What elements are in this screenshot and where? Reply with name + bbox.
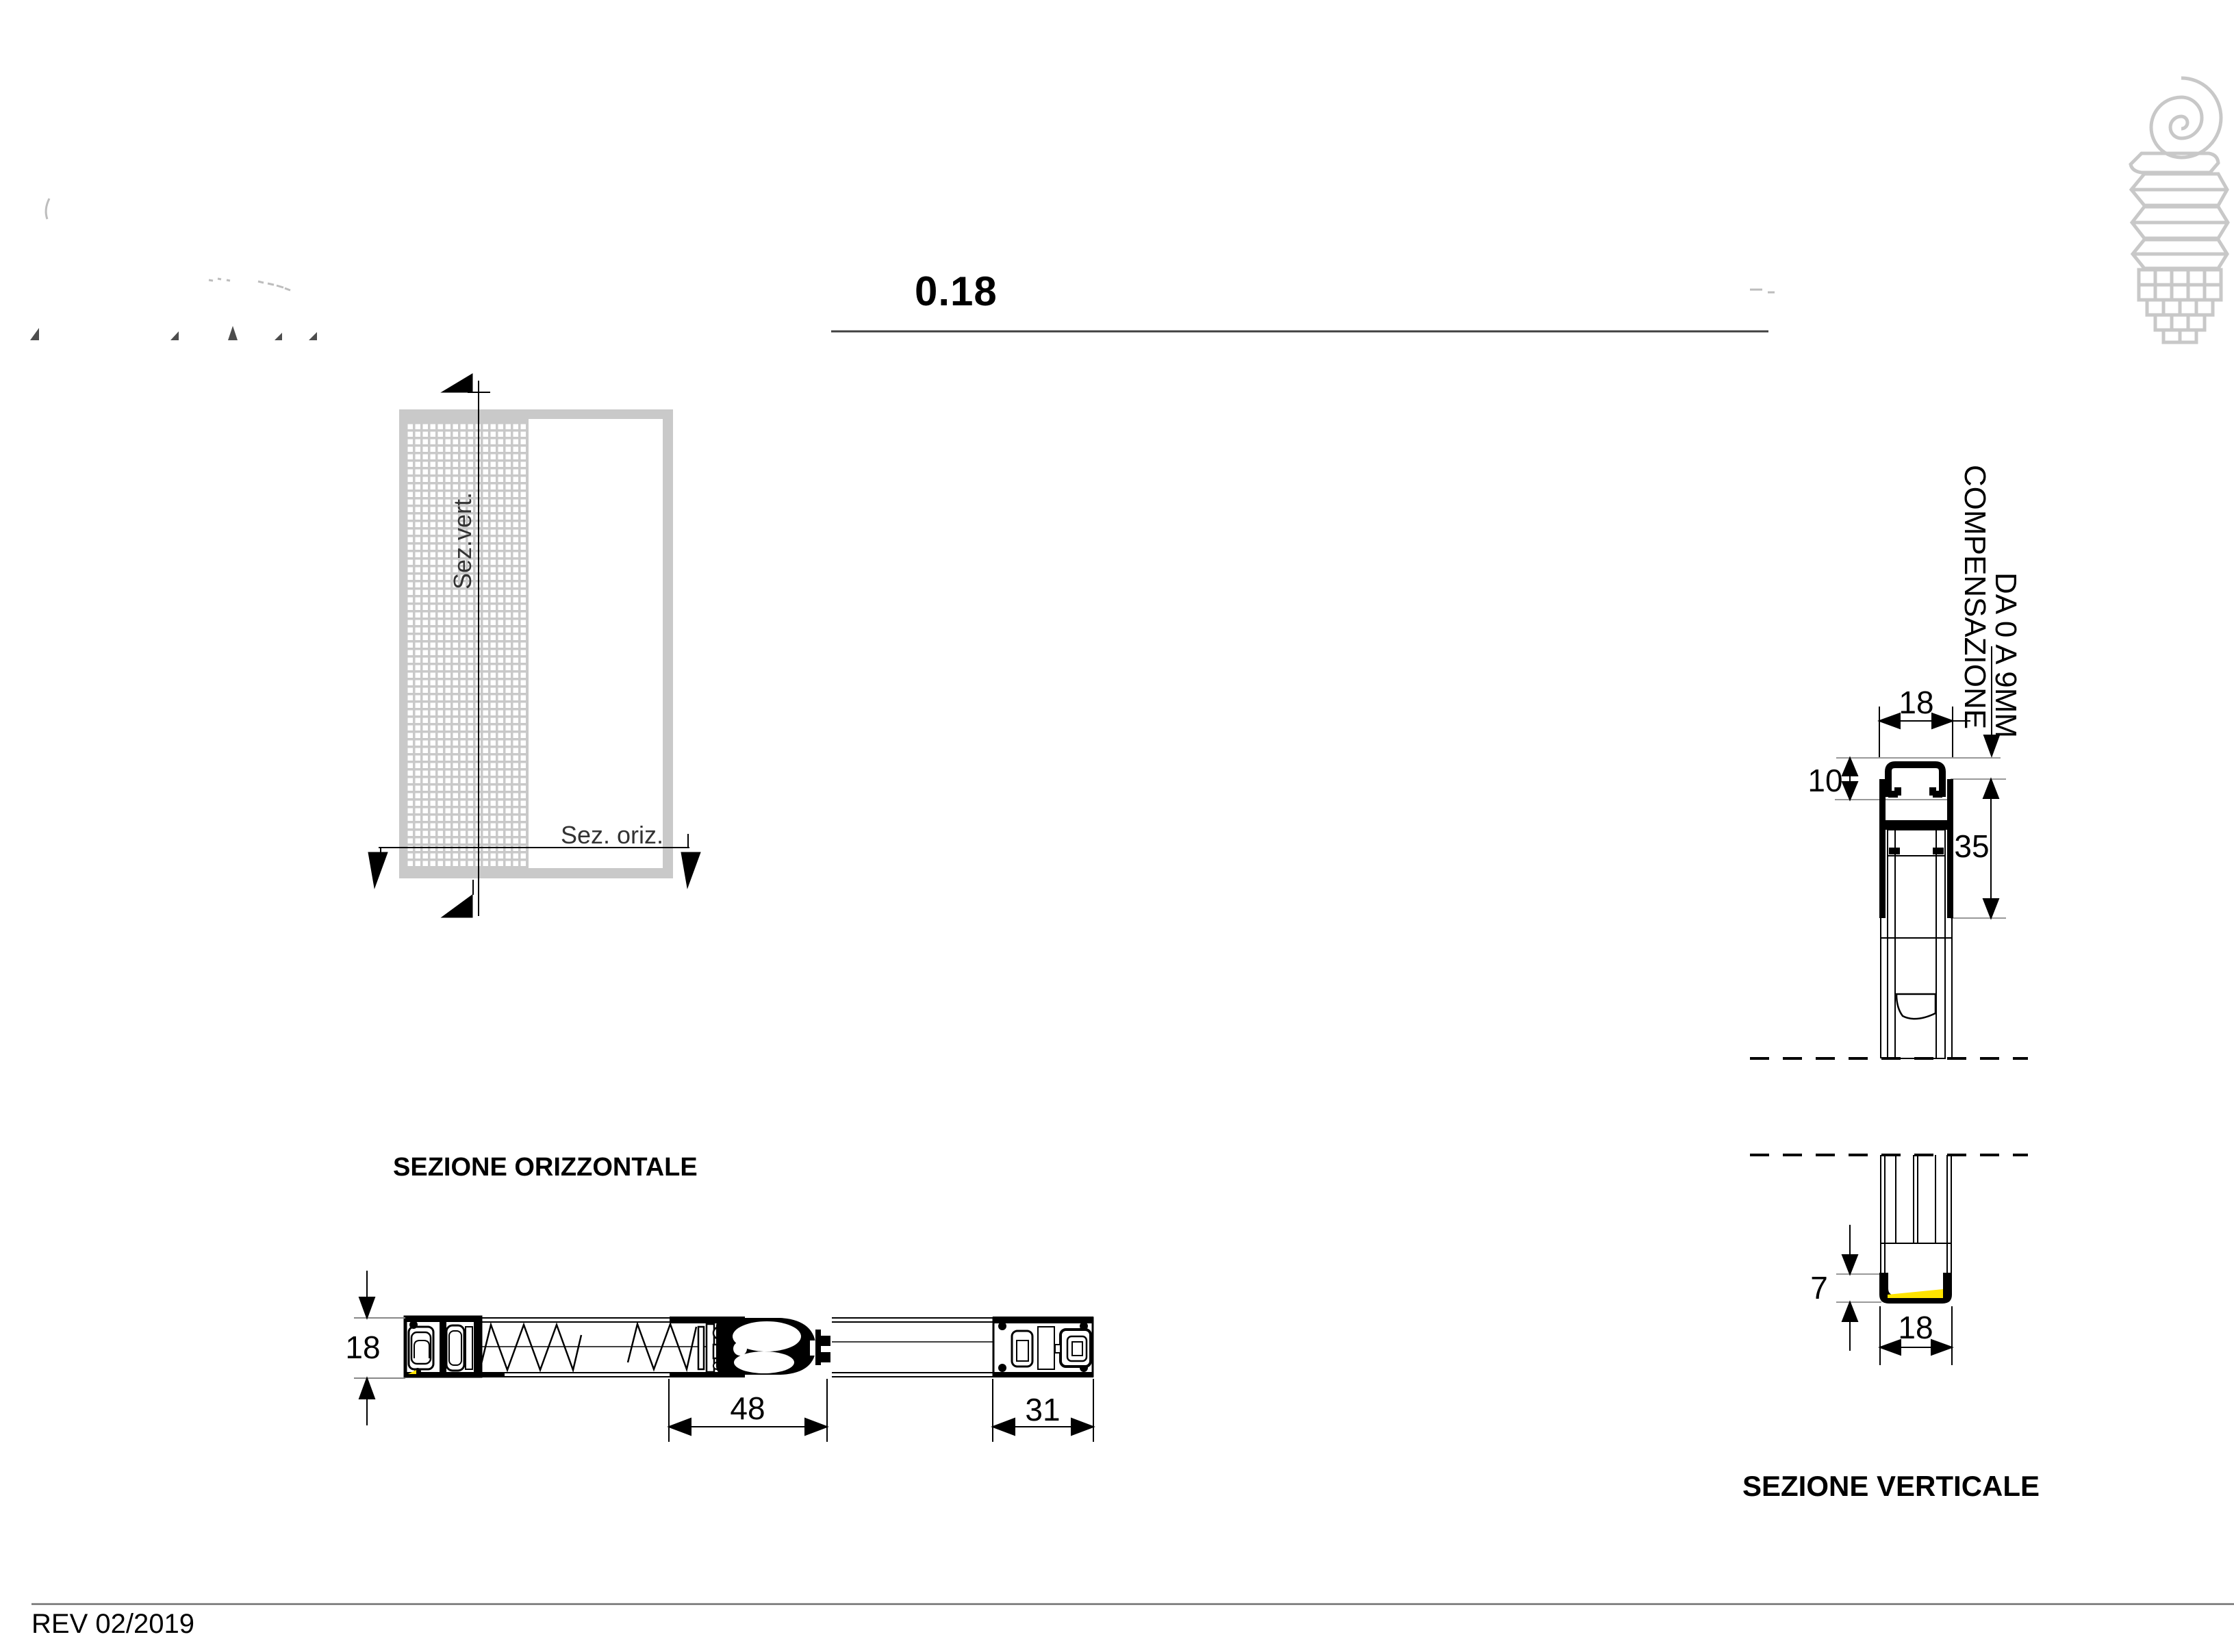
spiral-ribbon-grid-logo-icon bbox=[2131, 78, 2228, 342]
dim-label-bottom-height: 7 bbox=[1810, 1272, 1828, 1304]
dim-label-cassette-width: 48 bbox=[730, 1393, 765, 1424]
dim-label-frame-depth: 18 bbox=[345, 1332, 380, 1363]
dim-label-overlap: 35 bbox=[1954, 830, 1989, 862]
compensation-note-line2: DA 0 A 9MM bbox=[1990, 572, 2020, 738]
technical-drawing-canvas bbox=[0, 0, 2234, 1652]
drawing-sheet: { "sheet": { "title": "0.18", "revision"… bbox=[0, 0, 2234, 1652]
cassette-profile bbox=[670, 1317, 830, 1377]
page-title: 0.18 bbox=[915, 271, 998, 312]
plan-open-panel bbox=[529, 419, 663, 868]
dim-label-track-width: 18 bbox=[1899, 687, 1933, 718]
compensation-note-line1: COMPENSAZIONE bbox=[1959, 465, 1990, 729]
vertical-section-title: SEZIONE VERTICALE bbox=[1742, 1472, 2040, 1501]
vertical-section-drawing bbox=[1750, 646, 2028, 1365]
dim-label-track-height: 10 bbox=[1807, 765, 1842, 796]
guide-profile bbox=[993, 1317, 1093, 1377]
top-track-profile bbox=[1879, 765, 1953, 918]
dim-7-bottom-height bbox=[1842, 1225, 1857, 1351]
dim-label-bottom-width: 18 bbox=[1898, 1312, 1933, 1343]
dim-label-guide-width: 31 bbox=[1025, 1394, 1060, 1425]
horizontal-section-title: SEZIONE ORIZZONTALE bbox=[393, 1154, 698, 1180]
bottom-channel-profile bbox=[1879, 1273, 1952, 1304]
revision-label: REV 02/2019 bbox=[31, 1610, 194, 1638]
faded-letterhead-marks bbox=[30, 199, 1775, 340]
jamb-profile bbox=[405, 1316, 505, 1377]
break-lines bbox=[1750, 1058, 2028, 1155]
compensation-spring bbox=[481, 1324, 696, 1370]
plan-cut-label-horizontal: Sez. oriz. bbox=[561, 823, 663, 848]
dim-10-track-height bbox=[1842, 758, 1857, 800]
horizontal-section-drawing bbox=[354, 1271, 1093, 1442]
plan-view-frame bbox=[399, 409, 673, 878]
plan-cut-label-vertical: Sez.vert. bbox=[450, 492, 475, 589]
plan-mesh-panel bbox=[405, 422, 526, 868]
